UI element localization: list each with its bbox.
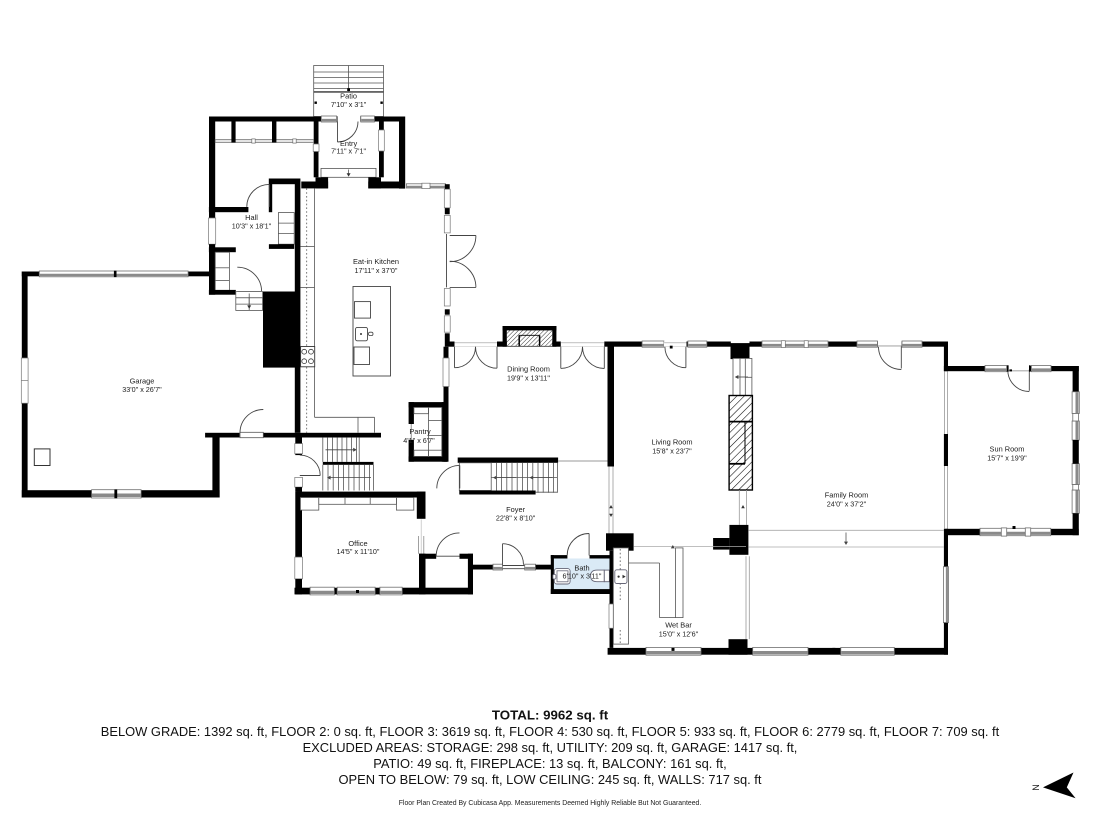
svg-text:TOTAL: 9962 sq. ft: TOTAL: 9962 sq. ft [492,708,609,723]
svg-text:15'0" x 12'6": 15'0" x 12'6" [659,630,699,639]
svg-text:6'10" x 3'11": 6'10" x 3'11" [563,572,602,581]
svg-text:15'7" x 19'9": 15'7" x 19'9" [987,454,1027,463]
svg-text:BELOW GRADE: 1392 sq. ft, FLOO: BELOW GRADE: 1392 sq. ft, FLOOR 2: 0 sq.… [101,724,1000,739]
svg-text:N: N [1031,784,1041,791]
svg-text:Living Room: Living Room [651,438,692,447]
svg-text:7'10" x 3'1": 7'10" x 3'1" [331,100,367,109]
svg-text:Sun Room: Sun Room [990,445,1025,454]
svg-text:24'0" x 37'2": 24'0" x 37'2" [827,500,867,509]
svg-text:14'5" x 11'10": 14'5" x 11'10" [337,547,380,556]
svg-text:Eat-in Kitchen: Eat-in Kitchen [353,257,399,266]
svg-text:17'11" x 37'0": 17'11" x 37'0" [355,266,398,275]
svg-text:PATIO: 49 sq. ft, FIREPLACE: 1: PATIO: 49 sq. ft, FIREPLACE: 13 sq. ft, … [373,756,726,771]
svg-text:15'8" x 23'7": 15'8" x 23'7" [652,447,692,456]
svg-text:10'3" x 18'1": 10'3" x 18'1" [232,222,272,231]
svg-text:EXCLUDED AREAS: STORAGE: 298 s: EXCLUDED AREAS: STORAGE: 298 sq. ft, UTI… [303,740,798,755]
svg-text:Dining Room: Dining Room [507,365,550,374]
svg-text:Floor Plan Created By Cubicasa: Floor Plan Created By Cubicasa App. Meas… [399,800,702,807]
svg-text:Family Room: Family Room [825,491,869,500]
svg-text:Pantry: Pantry [409,427,431,436]
svg-text:7'11" x 7'1": 7'11" x 7'1" [331,147,366,156]
svg-text:33'0" x 26'7": 33'0" x 26'7" [122,385,162,394]
svg-text:19'9" x 13'11": 19'9" x 13'11" [507,374,550,383]
svg-text:OPEN TO BELOW: 79 sq. ft, LOW: OPEN TO BELOW: 79 sq. ft, LOW CEILING: 2… [339,772,762,787]
svg-text:22'8" x 8'10": 22'8" x 8'10" [496,514,536,523]
svg-text:4'1" x 6'7": 4'1" x 6'7" [403,436,435,445]
svg-text:Wet Bar: Wet Bar [665,621,692,630]
